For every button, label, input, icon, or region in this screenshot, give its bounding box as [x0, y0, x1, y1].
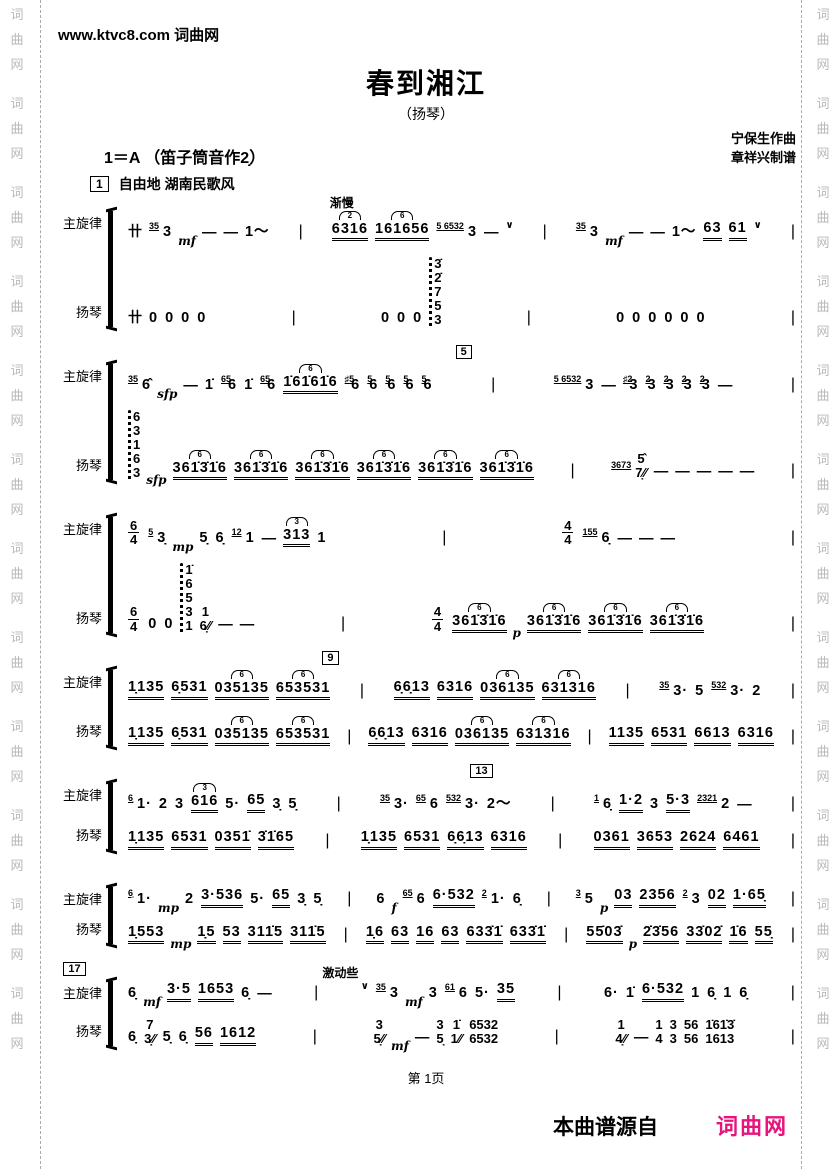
note-group: 6·532: [433, 887, 475, 908]
watermark-char: 网: [816, 592, 829, 605]
melody-line: 6̣1·mp23·5365·653̣5̣|6f6566·53221·6̣|35p…: [128, 887, 796, 908]
dash-note: —: [601, 378, 616, 394]
barline: |: [550, 795, 556, 813]
measure: 1̣13565316̣6̣136316: [361, 829, 527, 850]
ornamented-note: 155: [582, 529, 594, 547]
measure: 14̣⁄⁄—143356561̇61̇3̇1613: [615, 1018, 734, 1046]
melody-part-label: 主旋律: [63, 983, 102, 1002]
note-group: 1̇: [244, 377, 253, 394]
ornamented-note: 6̣: [128, 890, 130, 908]
tuplet-group: 6361̇3̇1̇6: [527, 603, 581, 633]
note-group: 6̣6̣13: [368, 725, 404, 746]
barline: |: [526, 309, 532, 327]
note-group: 6316: [412, 725, 448, 746]
note-group: 1: [246, 530, 255, 547]
rehearsal-mark-1: 1: [90, 176, 109, 192]
note-group: 1: [317, 530, 326, 547]
barline: |: [790, 223, 796, 241]
grace-notes: 2: [645, 374, 650, 384]
yangqin-line: 63163sfp6361̇3̇1̇66361̇3̇1̇66361̇3̇1̇663…: [128, 410, 796, 480]
measure: 6̣6̣13631660361356631316: [368, 716, 570, 746]
note-group: 1: [691, 985, 700, 1002]
note-group: 2〜: [487, 796, 512, 813]
watermark-char: 曲: [10, 300, 23, 313]
dynamic-mark: sfp: [157, 387, 177, 401]
grace-notes: 65: [260, 374, 270, 384]
breath-mark: ∨: [754, 220, 762, 231]
tuplet-group: 6161656: [375, 211, 429, 241]
chord-stack: 35̣⁄⁄: [373, 1018, 385, 1046]
barline: |: [542, 223, 548, 241]
measure: 0003̇2̇753: [381, 257, 441, 327]
tuplet-group: 6361̇3̇1̇6: [295, 450, 349, 480]
note-group: 2: [721, 796, 730, 813]
system-6: 主旋律扬琴6̣1·mp23·5365·653̣5̣|6f6566·53221·6…: [56, 872, 796, 944]
ornamented-note: 61: [445, 984, 452, 1002]
dash-note: —: [415, 1030, 430, 1046]
note-group: 0: [696, 310, 705, 327]
grace-notes: 2: [700, 374, 705, 384]
note-group: 55̇03̇: [586, 924, 622, 945]
barline: |: [346, 890, 352, 908]
system-brace: [108, 981, 120, 1046]
note-group: 02: [708, 887, 726, 908]
watermark-char: 网: [816, 325, 829, 338]
system-brace: [108, 211, 120, 327]
ornamented-note: 5 6532: [436, 223, 461, 241]
note-group: 63: [703, 220, 721, 241]
source-site-logo: 词曲网: [716, 1109, 788, 1141]
note-group: 6̣531: [171, 725, 207, 746]
watermark-char: 曲: [816, 923, 829, 936]
note-group: 6316: [491, 829, 527, 850]
grace-notes: 2: [664, 374, 669, 384]
note-group: 1612: [220, 1025, 256, 1046]
note-group: 3·5: [167, 981, 191, 1002]
system-2: 5主旋律扬琴356̂sfp—1̇6561̇65661̇61̇61̇6♯56565…: [56, 349, 796, 480]
note-group: 6̣: [603, 796, 612, 813]
note-group: 3·: [673, 683, 688, 700]
systems: 渐慢主旋律扬琴卄353mf——1〜|2631661616565 65323—∨|…: [56, 196, 796, 1046]
page-number: 第 1页: [56, 1068, 796, 1087]
ornamented-note: 6̣: [128, 795, 130, 813]
dynamic-mark: f: [391, 901, 396, 915]
note-group: 5: [585, 891, 594, 908]
grace-notes: 35: [128, 374, 138, 384]
watermark-char: 词: [10, 631, 23, 644]
page-title: 春到湘江: [56, 62, 796, 102]
system-brace: [108, 670, 120, 746]
system-1: 渐慢主旋律扬琴卄353mf——1〜|2631661616565 65323—∨|…: [56, 196, 796, 327]
watermark-char: 网: [10, 503, 23, 516]
note-group: 1̇6: [729, 924, 747, 945]
barline: |: [790, 682, 796, 700]
yangqin-part-label: 扬琴: [76, 919, 102, 938]
time-signature: 44: [432, 605, 443, 633]
melody-line: 6̣mf3·516536̣—|∨353mf36165·35|6·1̇6·5321…: [128, 981, 796, 1002]
note-group: 0: [397, 310, 406, 327]
watermark-char: 曲: [10, 389, 23, 402]
note-group: 6316: [738, 725, 774, 746]
dash-note: —: [618, 531, 633, 547]
dynamic-mark: p: [600, 901, 608, 915]
watermark-char: 曲: [816, 211, 829, 224]
rehearsal-mark-17: 17: [63, 962, 85, 976]
note-group: 0: [149, 310, 158, 327]
melody-line: 1̣1356̣53160351356653531|6̣6̣13631660361…: [128, 670, 796, 700]
note-group: 3: [650, 796, 659, 813]
barline: |: [546, 890, 552, 908]
note-group: 0361: [594, 829, 630, 850]
measure: ∨353mf36165·35: [361, 981, 515, 1002]
note-group: 6̣531: [171, 679, 207, 700]
system-3: 主旋律扬琴6453̣mp5̣6̣121—33131|441556̣———|640…: [56, 502, 796, 633]
note-group: 1·65̣: [733, 887, 766, 908]
note-group: 6531: [651, 725, 687, 746]
note-group: 1̣553: [128, 924, 164, 945]
ornamented-note: 35: [659, 682, 666, 700]
tuplet-group: 6361̇3̇1̇6: [418, 450, 472, 480]
barline: |: [557, 832, 563, 850]
watermark-char: 曲: [10, 834, 23, 847]
yangqin-part-label: 扬琴: [76, 302, 102, 321]
note-group: 5̣: [288, 796, 297, 813]
note-group: 3: [468, 224, 477, 241]
chord-stack: 5̂7̣⁄⁄: [635, 452, 647, 480]
grace-notes: 532: [446, 793, 461, 803]
time-signature: 64: [128, 519, 139, 547]
chord-stack: 16̣⁄⁄: [200, 605, 212, 633]
dash-note: —: [661, 531, 676, 547]
watermark-char: 词: [10, 453, 23, 466]
tuplet-group: 6361̇3̇1̇6: [234, 450, 288, 480]
grace-notes: 5: [422, 374, 427, 384]
note-group: 6: [430, 796, 439, 813]
barline: |: [291, 309, 297, 327]
grace-notes: 3673: [611, 460, 631, 470]
note-group: 2: [752, 683, 761, 700]
note-group: 0: [181, 310, 190, 327]
dash-note: —: [183, 378, 198, 394]
barline: |: [441, 529, 447, 547]
note-group: 1̣135: [361, 829, 397, 850]
yangqin-part-label: 扬琴: [76, 825, 102, 844]
barline: |: [569, 462, 575, 480]
measure: 36735̂7̣⁄⁄—————: [611, 452, 754, 480]
dynamic-mark: mf: [143, 995, 161, 1009]
measure: 446361̇3̇1̇6p6361̇3̇1̇66361̇3̇1̇66361̇3̇…: [432, 603, 704, 633]
watermark-char: 词: [10, 8, 23, 21]
breath-mark: ∨: [361, 981, 369, 992]
dash-note: —: [240, 617, 255, 633]
grace-notes: 65: [221, 374, 231, 384]
barline: |: [343, 926, 349, 944]
note-group: 6̣: [179, 1029, 188, 1046]
note-group: 1̣135: [128, 829, 164, 850]
note-group: 6461: [723, 829, 759, 850]
barline: |: [324, 832, 330, 850]
watermark-char: 词: [816, 8, 829, 21]
note-group: 0: [148, 616, 157, 633]
dash-note: —: [629, 225, 644, 241]
barline: |: [790, 1028, 796, 1046]
measure: 353·6565323·2〜: [380, 795, 512, 813]
note-group: 6̣: [739, 985, 748, 1002]
ornamented-note: 656: [221, 376, 237, 394]
watermark-char: 词: [10, 542, 23, 555]
watermark-char: 词: [816, 898, 829, 911]
note-group: 65: [272, 887, 290, 908]
note-group: 3̣: [297, 891, 306, 908]
note-group: 03: [614, 887, 632, 908]
measure: 356̂sfp—1̇6561̇65661̇61̇61̇6♯5656565656: [128, 364, 433, 394]
measure: 6·1̇6·53216̣16̣: [604, 981, 748, 1002]
yangqin-line: 卄0000|0003̇2̇753|000000|: [128, 257, 796, 327]
tuplet-group: 6653531: [276, 716, 330, 746]
note-group: 1̣135: [128, 679, 164, 700]
note-group: 3: [163, 224, 172, 241]
ornamented-note: 656: [260, 376, 276, 394]
watermark-char: 网: [816, 681, 829, 694]
watermark-char: 词: [816, 97, 829, 110]
note-group: 0: [680, 310, 689, 327]
chord-stack: 1̇61̇3̇1613: [705, 1018, 734, 1046]
note-group: 633̇1̇: [510, 924, 546, 945]
melody-part-label: 主旋律: [63, 785, 102, 804]
watermark-char: 曲: [10, 33, 23, 46]
ornamented-note: 2: [683, 890, 685, 908]
note-group: 1̣135: [128, 725, 164, 746]
ornamented-note: 23: [700, 376, 711, 394]
note-group: 6̣: [128, 985, 137, 1002]
note-group: 1653: [198, 981, 234, 1002]
note-group: 6̣: [216, 530, 225, 547]
watermark-char: 词: [816, 809, 829, 822]
expression-text: 激动些: [322, 964, 358, 981]
note-group: 1135: [609, 725, 644, 746]
watermark-char: 曲: [816, 389, 829, 402]
note-group: 5̣: [163, 1029, 172, 1046]
watermark-char: 网: [10, 770, 23, 783]
grace-notes: 65: [416, 793, 426, 803]
key-signature: 1＝A （笛子筒音作2̣）: [104, 144, 265, 168]
melody-part-label: 主旋律: [63, 519, 102, 538]
dash-note: —: [639, 531, 654, 547]
dash-note: —: [257, 986, 272, 1002]
note-group: 3: [585, 377, 594, 394]
watermark-char: 曲: [10, 567, 23, 580]
watermark-char: 曲: [10, 656, 23, 669]
chord-stack: 14̣⁄⁄: [615, 1018, 627, 1046]
note-group: 1〜: [672, 224, 697, 241]
watermark-char: 网: [10, 58, 23, 71]
composer-credit: 宁保生作曲: [731, 130, 796, 149]
chord-stack: 33: [670, 1018, 677, 1046]
note-group: 0: [164, 616, 173, 633]
grace-notes: 2: [683, 888, 688, 898]
grace-notes: 35: [376, 982, 386, 992]
grace-notes: 35: [380, 793, 390, 803]
note-group: 1̇: [205, 377, 214, 394]
yangqin-part-label: 扬琴: [76, 1021, 102, 1040]
watermark-char: 曲: [10, 478, 23, 491]
barline: |: [790, 728, 796, 746]
tuplet-group: 6361̇3̇1̇6: [173, 450, 227, 480]
note-group: 3·536: [201, 887, 243, 908]
tuplet-group: 6653531: [276, 670, 330, 700]
tuplet-group: 26316: [332, 211, 368, 241]
grace-notes: 12: [232, 527, 242, 537]
note-group: 65: [247, 792, 265, 813]
chord-stack: 73̣⁄⁄: [144, 1018, 156, 1046]
ornamented-note: 12: [232, 529, 239, 547]
note-group: 5̣: [313, 891, 322, 908]
note-group: 1̇: [626, 985, 635, 1002]
grace-notes: 65: [403, 888, 413, 898]
chord-stack: 63163: [128, 410, 140, 480]
system-brace: [108, 517, 120, 633]
credits: 宁保生作曲 章祥兴制谱: [731, 130, 796, 168]
ornamented-note: 23: [664, 376, 675, 394]
note-group: 311̇5: [290, 924, 325, 945]
barline: |: [790, 462, 796, 480]
melody-line: 6453̣mp5̣6̣121—33131|441556̣———|: [128, 517, 796, 547]
ornamented-note: 35: [380, 795, 387, 813]
watermark-char: 曲: [816, 122, 829, 135]
watermark-char: 网: [816, 147, 829, 160]
measure: 64001̇653116̣⁄⁄——: [128, 563, 254, 633]
watermark-char: 词: [816, 453, 829, 466]
grace-notes: ♯5: [345, 374, 355, 384]
measure: 6̣1·2336165·653̣5̣: [128, 783, 297, 813]
grace-notes: 35: [576, 221, 586, 231]
tuplet-group: 6361̇3̇1̇6: [357, 450, 411, 480]
site-watermark: www.ktvc8.com 词曲网: [58, 24, 219, 45]
grace-notes: 2: [482, 888, 487, 898]
dash-note: —: [634, 1030, 649, 1046]
note-group: 1·: [137, 796, 152, 813]
watermark-char: 网: [816, 58, 829, 71]
ornamented-note: 65: [416, 795, 423, 813]
barline: |: [312, 1028, 318, 1046]
barline: |: [790, 309, 796, 327]
watermark-char: 网: [10, 592, 23, 605]
ornamented-note: 35: [128, 376, 135, 394]
dynamic-mark: mp: [158, 901, 179, 915]
watermark-char: 网: [10, 859, 23, 872]
grace-notes: 155: [582, 527, 597, 537]
note-group: 6̣6̣13: [394, 679, 430, 700]
ornamented-note: 35: [376, 984, 383, 1002]
watermark-char: 曲: [816, 567, 829, 580]
note-group: 0: [197, 310, 206, 327]
watermark-char: 网: [816, 948, 829, 961]
note-group: 6̣: [128, 1029, 137, 1046]
watermark-char: 曲: [10, 211, 23, 224]
dynamic-mark: p: [629, 937, 637, 951]
measure: 5 65323—♯2323232323—: [554, 376, 733, 394]
dynamic-mark: mp: [170, 937, 191, 951]
grace-notes: 5: [385, 374, 390, 384]
measure: 000000: [616, 310, 705, 327]
measure: 16̣1·235·323212—: [594, 792, 752, 813]
note-group: 3: [590, 224, 599, 241]
note-group: 1̣5: [197, 924, 215, 945]
watermark-char: 曲: [10, 122, 23, 135]
yangqin-line: 6̣73̣⁄⁄5̣6̣561612|35̣⁄⁄mf—35̣1̇1⁄⁄653265…: [128, 1018, 796, 1046]
dash-note: —: [737, 797, 752, 813]
note-group: 6̣6̣13: [447, 829, 483, 850]
note-group: 3·: [730, 683, 745, 700]
watermark-char: 词: [10, 97, 23, 110]
note-group: 633̇1̇: [466, 924, 502, 945]
tuplet-group: 6035135: [215, 716, 269, 746]
yangqin-line: 1̣13565310351̇3̇1̇65|1̣13565316̣6̣136316…: [128, 829, 796, 850]
chord-stack: 5656: [684, 1018, 698, 1046]
watermark-char: 曲: [10, 745, 23, 758]
note-group: 6̂: [142, 377, 151, 394]
ornamented-note: 2321: [697, 795, 714, 813]
dash-note: —: [202, 225, 217, 241]
watermark-char: 词: [816, 364, 829, 377]
note-group: 2624: [680, 829, 716, 850]
measure: 353·55323·2: [659, 682, 761, 700]
note-group: 6̣: [241, 985, 250, 1002]
dynamic-mark: mf: [391, 1039, 409, 1053]
ornamented-note: 532: [446, 795, 458, 813]
note-group: 3·: [465, 796, 480, 813]
note-group: 6·: [604, 985, 619, 1002]
rehearsal-mark-13: 13: [470, 764, 492, 778]
yangqin-part-label: 扬琴: [76, 455, 102, 474]
note-group: 6: [459, 985, 468, 1002]
melody-line: 6̣1·2336165·653̣5̣|353·6565323·2〜|16̣1·2…: [128, 783, 796, 813]
dash-note: —: [718, 464, 733, 480]
watermark-char: 网: [10, 948, 23, 961]
rehearsal-mark-5: 5: [456, 345, 472, 359]
grace-notes: 35: [149, 221, 159, 231]
ornamented-note: 56: [367, 376, 378, 394]
system-brace: [108, 364, 120, 480]
ornamented-note: 35: [576, 223, 583, 241]
note-group: 2: [185, 891, 194, 908]
note-group: 6̣: [601, 530, 610, 547]
dash-note: —: [650, 225, 665, 241]
barline: |: [340, 615, 346, 633]
ornamented-note: 532: [711, 682, 723, 700]
barline: |: [336, 795, 342, 813]
measure: 1̣13565310351̇3̇1̇65: [128, 829, 294, 850]
tuplet-group: 6035135: [215, 670, 269, 700]
grace-notes: 3: [576, 888, 581, 898]
watermark-char: 曲: [816, 834, 829, 847]
score-sheet: 春到湘江 （扬琴） 1＝A （笛子筒音作2̣） 宁保生作曲 章祥兴制谱 1 自由…: [56, 62, 796, 1087]
note-group: 5: [695, 683, 704, 700]
yangqin-part-label: 扬琴: [76, 721, 102, 740]
watermark-char: 网: [10, 147, 23, 160]
dash-note: —: [218, 617, 233, 633]
right-dashed-rule: [801, 0, 802, 1169]
ornamented-note: 56: [385, 376, 396, 394]
note-group: 0: [413, 310, 422, 327]
grace-notes: 35: [659, 680, 669, 690]
tuplet-group: 6361̇3̇1̇6: [588, 603, 642, 633]
note-group: 1〜: [245, 224, 270, 241]
watermark-char: 网: [816, 770, 829, 783]
watermark-char: 曲: [816, 656, 829, 669]
note-group: 5̣: [199, 530, 208, 547]
note-group: 35: [497, 981, 515, 1002]
